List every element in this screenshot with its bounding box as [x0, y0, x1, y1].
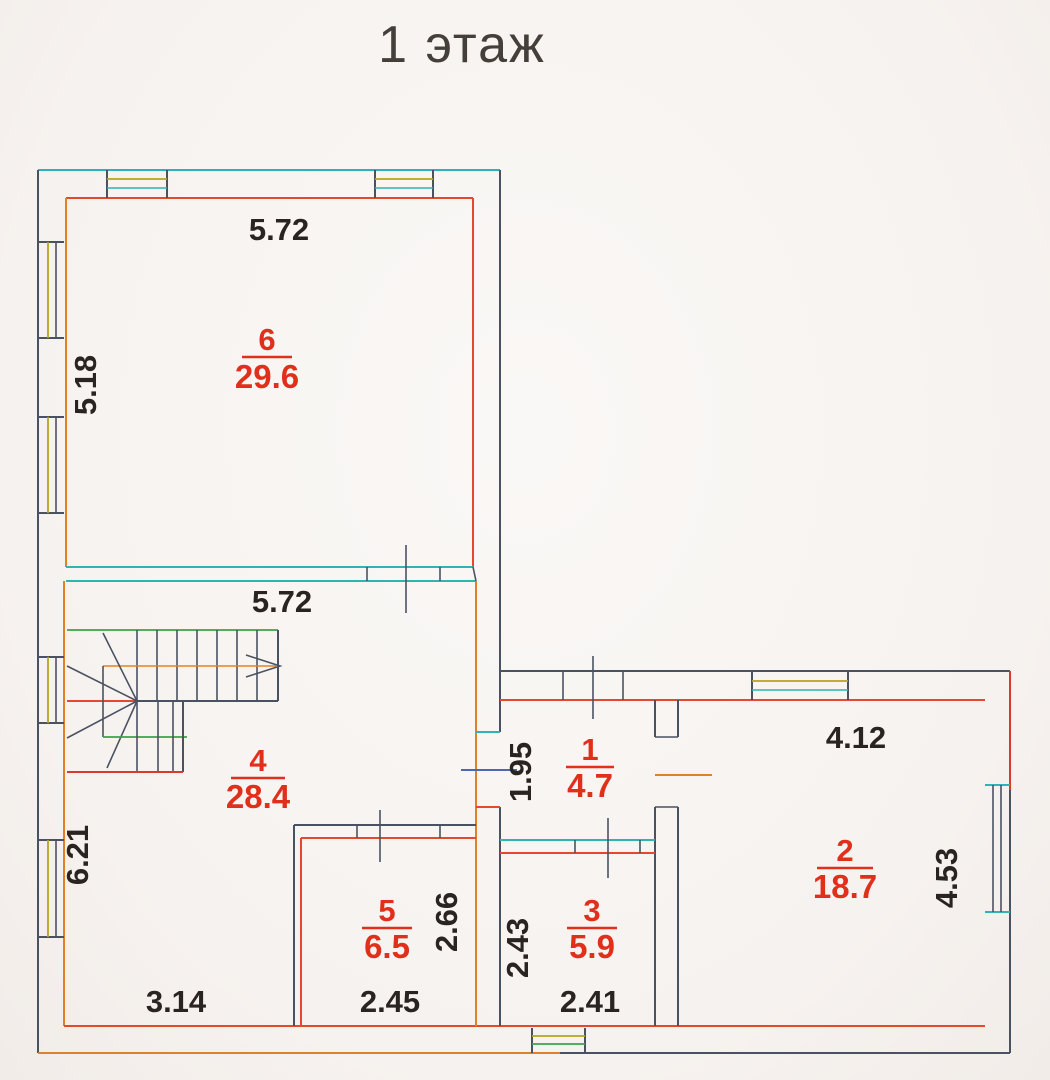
dim-room5-bottom-width: 2.45	[360, 984, 420, 1019]
dim-room2-top-width: 4.12	[826, 720, 886, 755]
room3-area: 5.9	[569, 928, 615, 965]
room-label-2: 2 18.7	[813, 833, 877, 905]
room5-area: 6.5	[364, 928, 410, 965]
window-right	[985, 785, 1010, 912]
room1-number: 1	[581, 732, 598, 767]
dim-room6-left-height: 5.18	[68, 355, 103, 415]
window-bottom	[532, 1028, 585, 1053]
room-label-5: 5 6.5	[362, 893, 412, 965]
dim-hall-top-width: 5.72	[252, 584, 312, 619]
dim-hall-left-height: 6.21	[60, 825, 95, 885]
room5-number: 5	[378, 893, 395, 928]
dim-room3-bottom-width: 2.41	[560, 984, 620, 1019]
room1-area: 4.7	[567, 767, 613, 804]
room6-area: 29.6	[235, 358, 299, 395]
dim-room2-right-height: 4.53	[929, 848, 964, 908]
dim-room6-top-width: 5.72	[249, 212, 309, 247]
room6-number: 6	[258, 322, 275, 357]
floor-title: 1 этаж	[378, 16, 546, 74]
window-room2-top	[752, 671, 848, 700]
room4-number: 4	[249, 743, 267, 778]
scanned-floor-plan-page: 1 этаж	[0, 0, 1050, 1080]
window-left-3	[38, 657, 64, 723]
dim-room3-left-height: 2.43	[500, 918, 535, 978]
room2-area: 18.7	[813, 868, 877, 905]
window-top-1	[107, 170, 167, 198]
room4-area: 28.4	[226, 778, 291, 815]
window-top-2	[375, 170, 433, 198]
room-label-6: 6 29.6	[235, 322, 299, 395]
window-left-1	[38, 242, 64, 338]
dim-room5-right-height: 2.66	[429, 892, 464, 952]
room2-number: 2	[836, 833, 853, 868]
room3-number: 3	[583, 893, 600, 928]
dim-room1-width: 1.95	[503, 742, 538, 802]
floor-plan-svg: 1 этаж	[0, 0, 1050, 1080]
window-left-2	[38, 417, 64, 513]
dim-hall-bottom-width: 3.14	[146, 984, 207, 1019]
room-label-4: 4 28.4	[226, 743, 291, 815]
room-label-1: 1 4.7	[566, 732, 614, 804]
staircase	[67, 630, 280, 772]
room-label-3: 3 5.9	[567, 893, 617, 965]
room-labels: 6 29.6 4 28.4 1 4.7 2 18.7 5 6.5 3 5.9	[226, 322, 877, 965]
